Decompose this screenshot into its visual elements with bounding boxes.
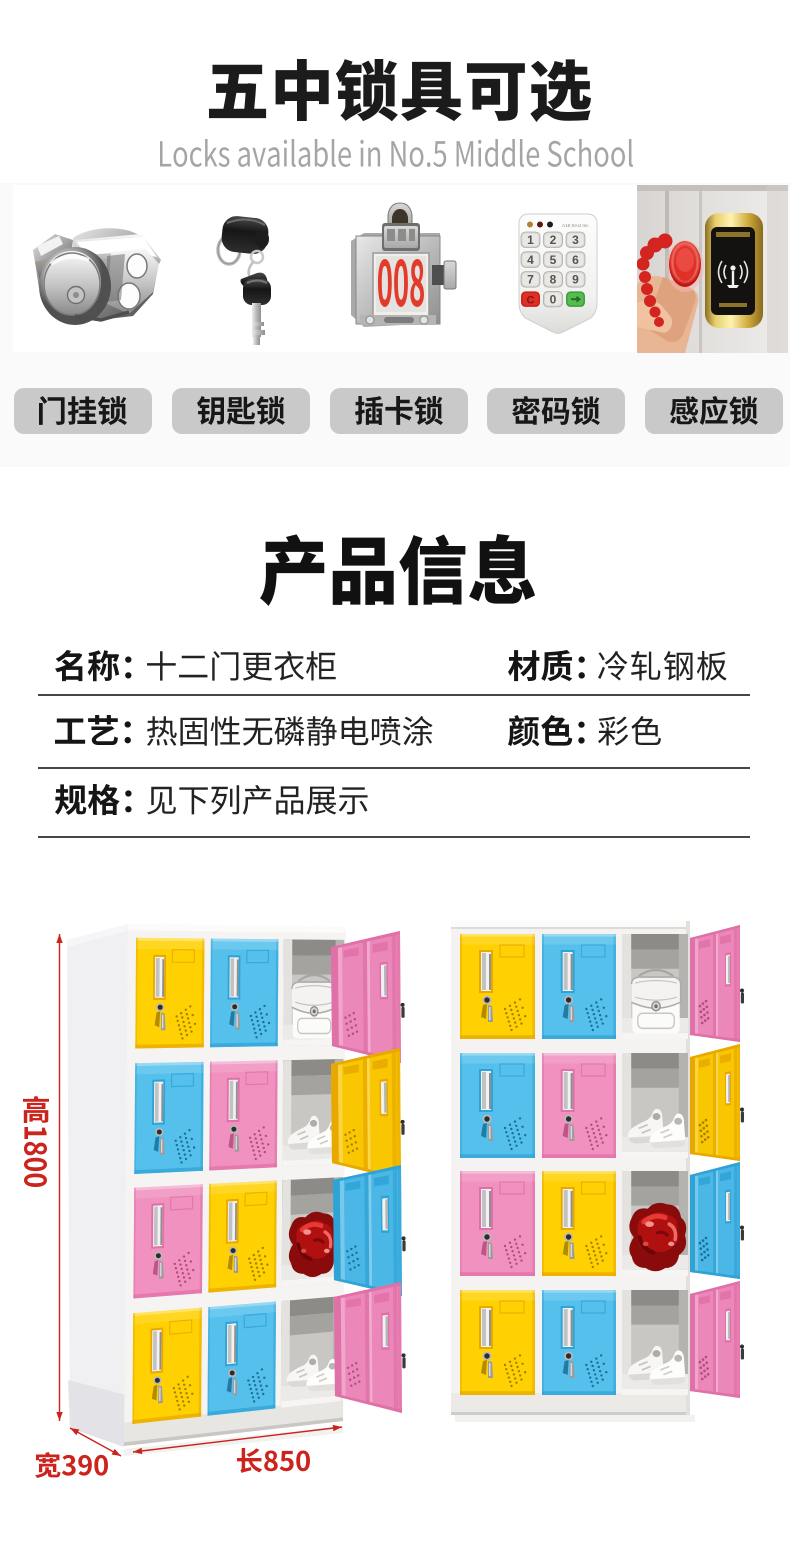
svg-text:3: 3: [572, 233, 579, 247]
svg-text:A19 SAIJ Inc: A19 SAIJ Inc: [562, 223, 589, 228]
svg-text:9: 9: [572, 273, 579, 287]
svg-text:C: C: [527, 295, 535, 307]
svg-text:1: 1: [527, 233, 534, 247]
svg-text:7: 7: [527, 273, 534, 287]
svg-text:2: 2: [550, 233, 557, 247]
svg-text:6: 6: [572, 253, 579, 267]
svg-text:8: 8: [550, 273, 557, 287]
svg-text:5: 5: [550, 253, 557, 267]
svg-text:0: 0: [550, 292, 557, 306]
svg-text:4: 4: [527, 253, 534, 267]
